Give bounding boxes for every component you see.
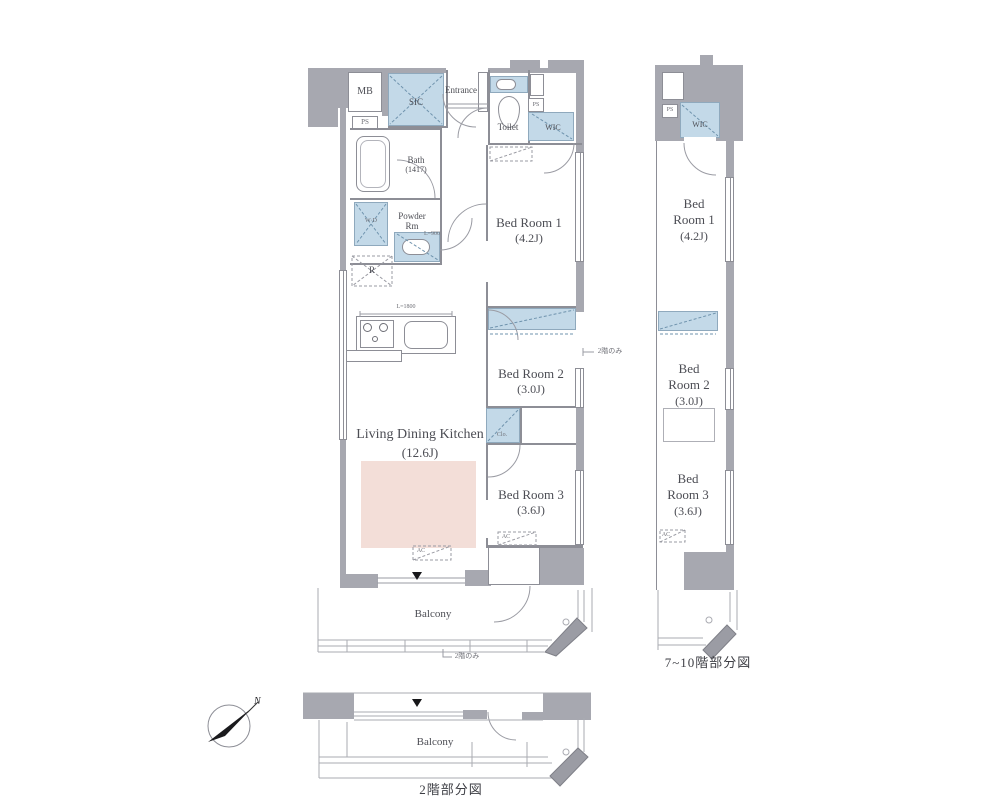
- wic-door-arc: [544, 143, 574, 173]
- wall: [303, 693, 354, 719]
- wall: [684, 552, 726, 590]
- room-label-powder: Powder: [398, 212, 426, 221]
- bedroom3-door-arc: [488, 445, 520, 477]
- upper-bedroom1-door-arc: [684, 143, 716, 175]
- room-size-bedroom2: (3.0J): [675, 395, 703, 407]
- balcony-label: Balcony: [415, 609, 452, 620]
- wall: [510, 60, 540, 69]
- room-size-bedroom1: (4.2J): [515, 232, 543, 244]
- partition: [486, 443, 488, 500]
- room-label-entrance: Entrance: [445, 86, 477, 95]
- toilet-door-arc: [458, 108, 488, 138]
- partition: [350, 263, 442, 265]
- kitchen-counter-step: [346, 350, 402, 362]
- partition: [446, 70, 448, 128]
- wall: [576, 262, 584, 312]
- sliding-door-lines: [377, 578, 465, 583]
- counter-length-note: L=900: [424, 231, 440, 237]
- room-label-bedroom2: Bed Room 2: [498, 367, 564, 380]
- wall: [726, 141, 734, 177]
- bedroom-divider-closet: [488, 308, 576, 330]
- bedroom-divider-closet: [658, 311, 718, 331]
- kitchen-sink: [404, 321, 448, 349]
- window: [725, 368, 734, 410]
- entry-triangle-marker: [412, 699, 422, 707]
- wall: [726, 262, 734, 368]
- note-bracket: [583, 348, 594, 356]
- balcony-door-arc: [494, 586, 530, 622]
- ac-label: AC: [662, 532, 670, 538]
- wall: [463, 710, 487, 719]
- window: [725, 177, 734, 262]
- toilet-cabinet: [530, 74, 544, 96]
- wall: [726, 545, 734, 590]
- floor2-balcony-door-arc: [488, 712, 516, 740]
- compass-tip-line: [247, 702, 258, 713]
- balcony-door-notch: [488, 548, 540, 585]
- open-closet-outline: [663, 408, 715, 442]
- floorplan-canvas: N MB PS SIC Entrance Toilet PS WIC Bath …: [0, 0, 999, 801]
- ac-label: AC: [502, 534, 510, 540]
- wall: [576, 408, 584, 470]
- room-size-bath: (1417): [405, 166, 426, 174]
- partition: [388, 126, 446, 128]
- bedroom1-door-arc: [448, 204, 486, 242]
- room-label-bedroom1: Room 1: [673, 213, 715, 226]
- balcony-rail: [730, 590, 737, 630]
- room-label-toilet: Toilet: [498, 123, 519, 132]
- closet-label: Clo.: [497, 432, 507, 438]
- stove-burner: [379, 323, 388, 332]
- powder-basin: [402, 239, 430, 255]
- stove-burner: [363, 323, 372, 332]
- partition: [488, 143, 582, 145]
- wall: [700, 55, 713, 67]
- balcony-corner-slab: [545, 618, 587, 656]
- room-size-ldk: (12.6J): [402, 446, 438, 459]
- balcony-corner-slab: [550, 748, 588, 786]
- room-label-bedroom3: Room 3: [667, 488, 709, 501]
- partition: [520, 408, 522, 443]
- room-label-mb: MB: [357, 87, 373, 97]
- fridge-label: R: [369, 266, 375, 275]
- compass-circle: [208, 705, 250, 747]
- wall: [340, 68, 346, 270]
- bathtub-inner: [360, 140, 386, 188]
- window: [725, 470, 734, 545]
- balcony-rail: [318, 640, 552, 652]
- drain-circle: [706, 617, 712, 623]
- wall: [540, 548, 584, 585]
- compass: N: [208, 696, 262, 747]
- balcony-post: [347, 640, 527, 652]
- washer-dryer-label: W·D: [365, 218, 377, 224]
- compass-needle: [208, 708, 252, 742]
- room-size-bedroom3: (3.6J): [517, 504, 545, 516]
- wall: [522, 712, 543, 720]
- floor-note-right: 2階のみ: [598, 348, 623, 355]
- powder-door-arc: [440, 218, 472, 250]
- stove-knob: [372, 336, 378, 342]
- room-label-bedroom2: Bed: [679, 362, 700, 375]
- window: [339, 270, 347, 440]
- ldk-rug: [361, 461, 476, 548]
- room-label-wic: WIC: [545, 124, 561, 132]
- room-label-bedroom3: Bed: [678, 472, 699, 485]
- floor2-plan-caption: 2階部分図: [419, 783, 483, 796]
- compass-north-label: N: [253, 696, 262, 707]
- wall: [340, 440, 346, 588]
- shoe-box: [478, 72, 488, 112]
- room-label-ps: PS: [667, 107, 674, 113]
- sliding-door-lines: [354, 712, 463, 716]
- room-label-ldk: Living Dining Kitchen: [356, 428, 484, 442]
- room-label-powder2: Rm: [405, 222, 418, 231]
- upper-closet-box: [662, 72, 684, 100]
- partition: [486, 145, 488, 241]
- balcony-corner-slab: [703, 625, 736, 659]
- note-bracket: [443, 649, 452, 657]
- balcony-label: Balcony: [417, 737, 454, 748]
- wall: [576, 64, 584, 152]
- partition: [486, 282, 488, 408]
- partition: [440, 128, 442, 265]
- entry-triangle-marker: [412, 572, 422, 580]
- partition: [486, 443, 576, 445]
- window: [575, 368, 584, 408]
- upper-plan-caption: 7~10階部分図: [665, 656, 752, 669]
- drain-circle: [563, 749, 569, 755]
- room-size-bedroom1: (4.2J): [680, 230, 708, 242]
- room-label-bedroom1: Bed Room 1: [496, 216, 562, 229]
- room-size-bedroom2: (3.0J): [517, 383, 545, 395]
- window: [575, 470, 584, 545]
- floor-note-bottom: 2階のみ: [455, 653, 480, 660]
- room-label-bath: Bath: [408, 156, 425, 165]
- partition: [350, 198, 440, 200]
- wall: [543, 693, 591, 720]
- room-label-bedroom3: Bed Room 3: [498, 488, 564, 501]
- balcony-rail: [578, 588, 592, 632]
- door-opening: [684, 137, 716, 142]
- balcony-rail: [578, 718, 584, 752]
- room-label-ps: PS: [533, 102, 540, 108]
- balcony-rail: [319, 757, 558, 778]
- room-size-bedroom3: (3.6J): [674, 505, 702, 517]
- ac-label: AC: [417, 548, 425, 554]
- balcony-rail: [658, 638, 706, 645]
- wall: [340, 574, 378, 588]
- room-label-wic: WIC: [692, 121, 708, 129]
- window: [575, 152, 584, 262]
- room-label-sic: SIC: [409, 98, 423, 107]
- drain-circle: [563, 619, 569, 625]
- room-label-bedroom1: Bed: [684, 197, 705, 210]
- washer-dryer-space: [354, 202, 388, 246]
- plan-cut-edge: [656, 141, 657, 590]
- wall: [308, 108, 338, 127]
- shelf-symbol: [490, 147, 532, 161]
- toilet-basin: [496, 79, 516, 90]
- room-label-ps: PS: [361, 119, 369, 126]
- room-label-bedroom2: Room 2: [668, 378, 710, 391]
- kitchen-length-note: L=1800: [396, 304, 415, 310]
- wall: [726, 410, 734, 470]
